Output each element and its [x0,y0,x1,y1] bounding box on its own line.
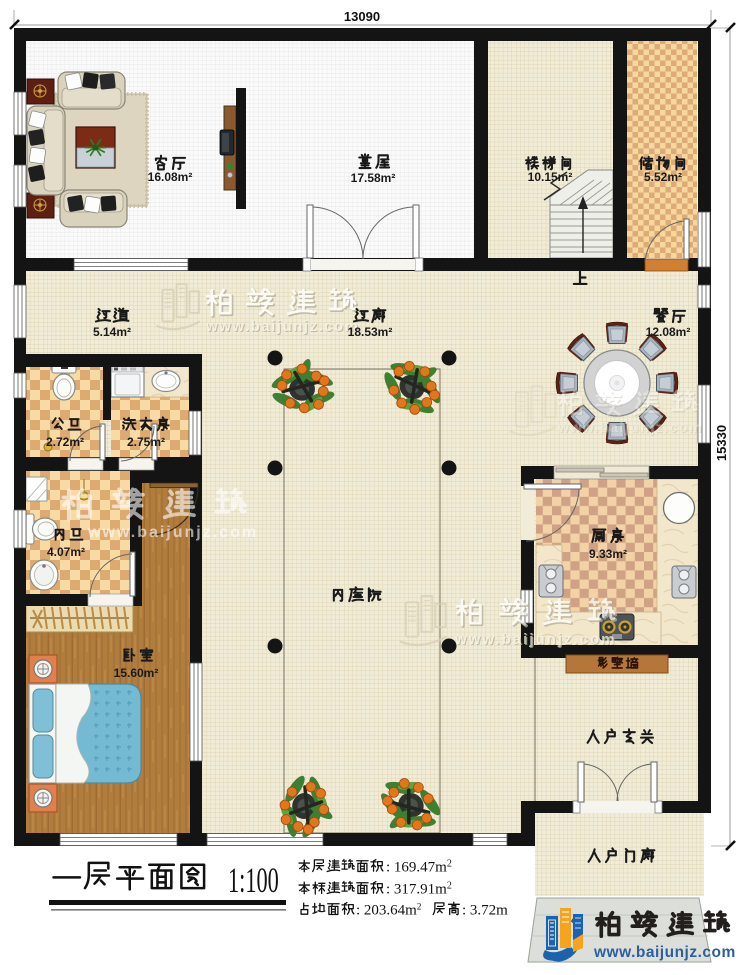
svg-text:13090: 13090 [344,9,380,24]
svg-text:9.33m²: 9.33m² [589,547,627,561]
svg-text:www.baijunjz.com: www.baijunjz.com [87,524,258,541]
svg-text:12.08m²: 12.08m² [646,325,691,339]
svg-text:15330: 15330 [714,425,729,461]
svg-text:www.baijunjz.com: www.baijunjz.com [593,944,736,961]
svg-text:4.07m²: 4.07m² [47,545,85,559]
svg-text:5.52m²: 5.52m² [644,170,682,184]
svg-text:10.15m²: 10.15m² [528,170,573,184]
svg-text:17.58m²: 17.58m² [351,171,396,185]
svg-text:16.08m²: 16.08m² [148,170,193,184]
svg-text:18.53m²: 18.53m² [348,325,393,339]
svg-text:1:100: 1:100 [228,861,279,901]
svg-text:2.72m²: 2.72m² [46,435,84,449]
svg-text:5.14m²: 5.14m² [93,325,131,339]
svg-text:: 169.47m2: : 169.47m2 [386,859,452,876]
svg-text:www.baijunjz.com: www.baijunjz.com [454,631,616,648]
svg-text:: 3.72m: : 3.72m [462,903,508,919]
svg-text:www.baijunjz.com: www.baijunjz.com [557,419,703,435]
svg-text:www.baijunjz.com: www.baijunjz.com [205,318,359,335]
svg-text:2.75m²: 2.75m² [127,435,165,449]
svg-text:: 203.64m2: : 203.64m2 [356,902,421,919]
svg-text:15.60m²: 15.60m² [114,666,159,680]
svg-text:: 317.91m2: : 317.91m2 [386,881,452,898]
